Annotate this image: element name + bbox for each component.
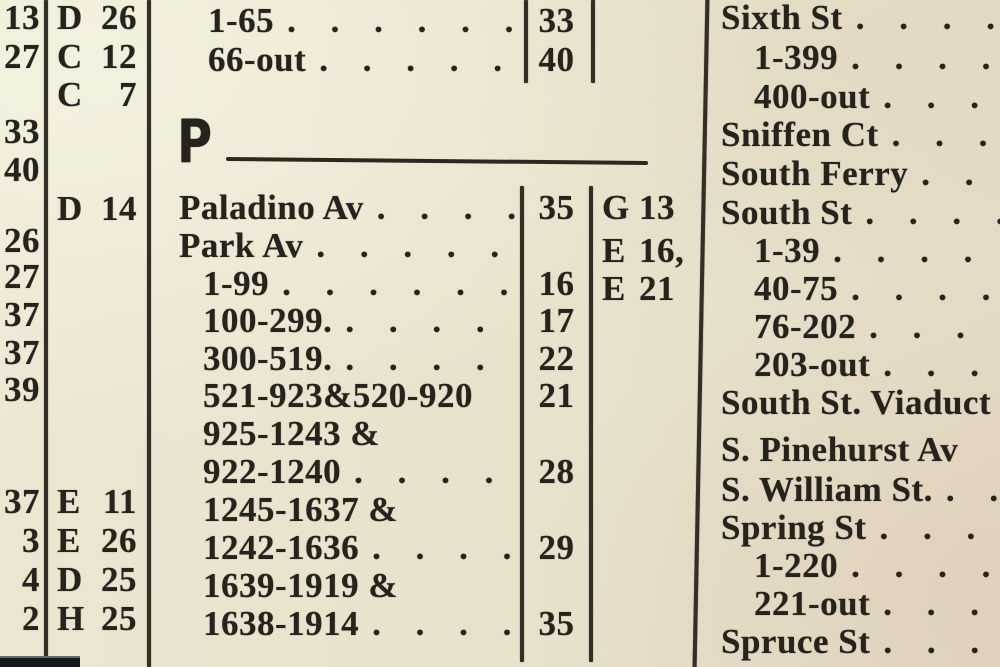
dot-leader: . . . [879,115,1000,154]
map-grid-ref: E21 [602,269,700,308]
index-row: 1-220. . . . . [754,546,1000,585]
street-name: 1638-1914 [203,604,359,643]
grid-letter: E [57,482,81,521]
grid-letter: E [602,269,639,308]
index-row: 1-65. . . . . . . [208,1,521,40]
left-grid-ref: H25 [57,599,137,638]
index-row: Spring St. . . . [721,508,1000,547]
index-row: 400-out. . . . [754,77,1000,116]
dot-leader: . . . . [856,307,1000,346]
dot-leader: . . . . [870,345,1000,384]
street-name: 521-923&520-920 [203,376,473,415]
page-col-rule-top-right [591,0,595,83]
dot-leader: . . . . . [838,269,1000,308]
street-name: South St. Viaduct [721,383,991,422]
left-page-number: 4 [0,560,40,599]
street-name: Paladino Av [179,188,364,227]
dot-leader: . . . . [870,77,1000,116]
index-row: South Ferry. . [721,154,1000,193]
dot-leader: . . . . . [820,231,1000,270]
page-number-cell: 22 [524,339,589,378]
dot-leader: . . . . . [332,339,517,378]
index-row: 1245-1637 & [203,490,517,529]
left-page-number: 27 [0,257,40,296]
page-number-cell: 16 [524,264,589,303]
grid-letter: C [57,75,83,114]
index-row: 1638-1914. . . . [203,604,517,643]
street-name: 925-1243 & [203,414,380,453]
page-number-cell: 40 [524,40,589,79]
dot-leader: . . . . . . [306,40,521,79]
index-row: Spruce St. . . [721,622,1000,661]
section-letter: P [177,112,212,172]
page-number-cell: 17 [524,301,589,340]
left-grid-ref: D14 [57,189,137,228]
dot-leader: . . . . [867,508,1000,547]
page-number-cell: 35 [524,188,589,227]
street-name: 1-99 [203,264,269,303]
index-row: 521-923&520-920 [203,376,517,415]
street-name: 76-202 [754,307,856,346]
grid-number: 25 [101,599,137,638]
left-page-number: 27 [0,37,40,76]
street-name: 1242-1636 [203,528,359,567]
street-name: 922-1240 [203,452,341,491]
dot-leader: . . . . [359,528,517,567]
dot-leader: . . [908,154,1000,193]
page-number-cell: 21 [524,376,589,415]
dot-leader: . . . . . [838,546,1000,585]
grid-number: 12 [101,37,137,76]
street-name: Sixth St [721,0,843,37]
index-row: 1-39. . . . . [754,231,1000,270]
index-row: 66-out. . . . . . [208,40,521,79]
left-grid-ref: D26 [57,0,137,37]
street-name: S. William St. [721,470,933,509]
grid-number: 26 [101,0,137,37]
street-name: Spring St [721,508,867,547]
dot-leader: . . . . . . . [269,264,517,303]
left-page-number: 39 [0,370,40,409]
index-row: Sniffen Ct. . . [721,115,1000,154]
left-grid-ref: C7 [57,75,137,114]
dot-leader: . . . . . [341,452,517,491]
index-row: 100-299.. . . . . [203,301,517,340]
street-name: 40-75 [754,269,838,308]
column-rule-left-inner [44,0,48,658]
left-page-number: 40 [0,150,40,189]
street-name: S. Pinehurst Av [721,430,958,469]
left-page-number: 37 [0,482,40,521]
index-row: 203-out. . . . [754,345,1000,384]
left-page-number: 13 [0,0,40,37]
grid-number: 11 [103,482,137,521]
page-number-cell: 29 [524,528,589,567]
section-rule [226,157,648,165]
dot-leader: . . . . [364,188,517,227]
street-name: 1-65 [208,1,274,40]
dot-leader: . . . . . . [303,226,517,265]
street-name: 1639-1919 & [203,566,398,605]
grid-number: 7 [119,75,137,114]
street-name: South St [721,193,852,232]
grid-number: 26 [101,521,137,560]
street-name: 1-399 [754,38,838,77]
index-row: Park Av. . . . . . [179,226,517,265]
dot-leader: . . . [870,622,1000,661]
left-page-number: 37 [0,333,40,372]
index-row: 1-399. . . . . . [754,38,1000,77]
dot-leader: . . . . . . . [274,1,521,40]
page-number-cell: 33 [524,1,589,40]
grid-number: 16, [639,231,684,270]
left-grid-ref: D25 [57,560,137,599]
street-name: 221-out [754,584,870,623]
grid-letter: G [602,188,639,227]
grid-letter: C [57,37,83,76]
index-row: South St. . . . [721,193,1000,232]
left-page-number: 37 [0,295,40,334]
left-grid-ref: C12 [57,37,137,76]
page-col-rule-left [520,186,524,662]
left-page-number: 33 [0,112,40,151]
street-index-card: P 13273340262737373937342D26C12C7D14E11E… [0,0,1000,667]
street-name: 203-out [754,345,870,384]
left-grid-ref: E11 [57,482,137,521]
dot-leader: . . . . [870,584,1000,623]
left-page-number: 26 [0,221,40,260]
column-rule-left-outer [147,0,151,667]
index-row: 1639-1919 & [203,566,517,605]
page-col-rule-right [589,186,593,662]
photo-dark-edge [0,656,80,667]
grid-number: 14 [101,189,137,228]
street-name: 66-out [208,40,306,79]
index-row: 40-75. . . . . [754,269,1000,308]
index-row: S. William St.. . [721,470,1000,509]
map-grid-ref: G13 [602,188,700,227]
grid-letter: E [57,521,81,560]
grid-number: 13 [639,188,675,227]
grid-number: 25 [101,560,137,599]
page-number-cell: 35 [524,604,589,643]
street-name: Park Av [179,226,303,265]
index-row: South St. Viaduct [721,383,1000,422]
index-row: 76-202. . . . [754,307,1000,346]
dot-leader: . . . . . [332,301,517,340]
index-row: 1-99. . . . . . . [203,264,517,303]
grid-number: 21 [639,269,675,308]
index-row: 922-1240. . . . . [203,452,517,491]
left-grid-ref: E26 [57,521,137,560]
grid-letter: D [57,0,83,37]
dot-leader: . . . . [359,604,517,643]
grid-letter: D [57,560,83,599]
left-page-number: 2 [0,599,40,638]
street-name: South Ferry [721,154,908,193]
grid-letter: D [57,189,83,228]
dot-leader: . . [933,470,1000,509]
street-name: 100-299. [203,301,332,340]
street-name: 400-out [754,77,870,116]
map-grid-ref: E16, [602,231,700,270]
street-name: Sniffen Ct [721,115,879,154]
street-name: 300-519. [203,339,332,378]
left-page-number: 3 [0,521,40,560]
dot-leader: . . . . . . [838,38,1000,77]
street-name: 1-220 [754,546,838,585]
index-row: 300-519.. . . . . [203,339,517,378]
column-rule-right [693,0,709,667]
dot-leader: . . . . [852,193,1000,232]
street-name: 1-39 [754,231,820,270]
page-number-cell: 28 [524,452,589,491]
index-row: S. Pinehurst Av [721,430,1000,469]
street-name: Spruce St [721,622,870,661]
grid-letter: H [57,599,85,638]
index-row: 925-1243 & [203,414,517,453]
index-row: 1242-1636. . . . [203,528,517,567]
dot-leader: . . . . [843,0,1000,37]
grid-letter: E [602,231,639,270]
index-row: 221-out. . . . [754,584,1000,623]
street-name: 1245-1637 & [203,490,398,529]
index-row: Paladino Av. . . . [179,188,517,227]
index-row: Sixth St. . . . [721,0,1000,37]
